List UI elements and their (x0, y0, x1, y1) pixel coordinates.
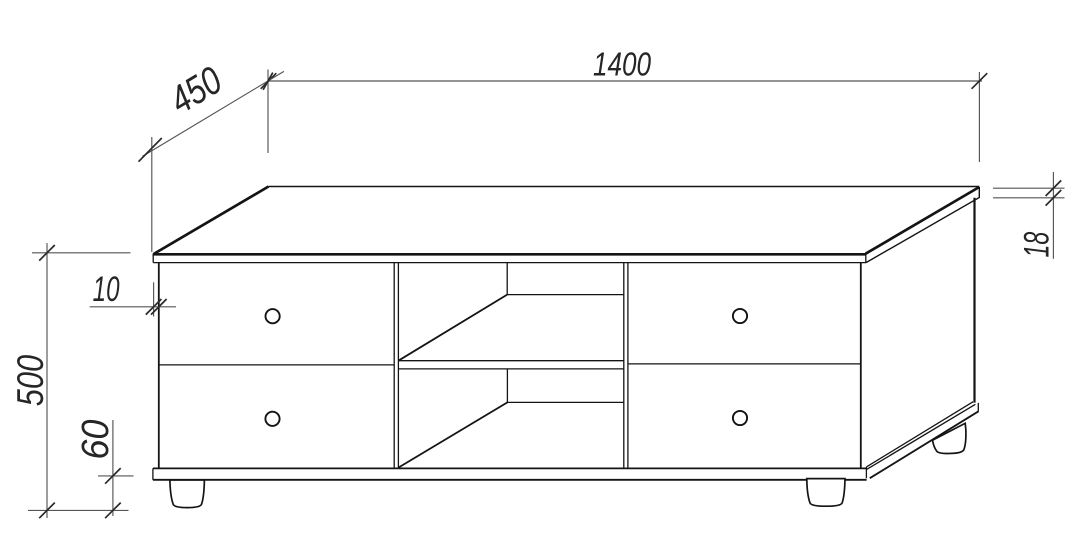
svg-text:10: 10 (93, 271, 120, 309)
svg-text:1400: 1400 (593, 47, 651, 84)
svg-text:60: 60 (73, 419, 116, 460)
svg-text:500: 500 (10, 355, 52, 406)
svg-text:18: 18 (1018, 231, 1057, 257)
